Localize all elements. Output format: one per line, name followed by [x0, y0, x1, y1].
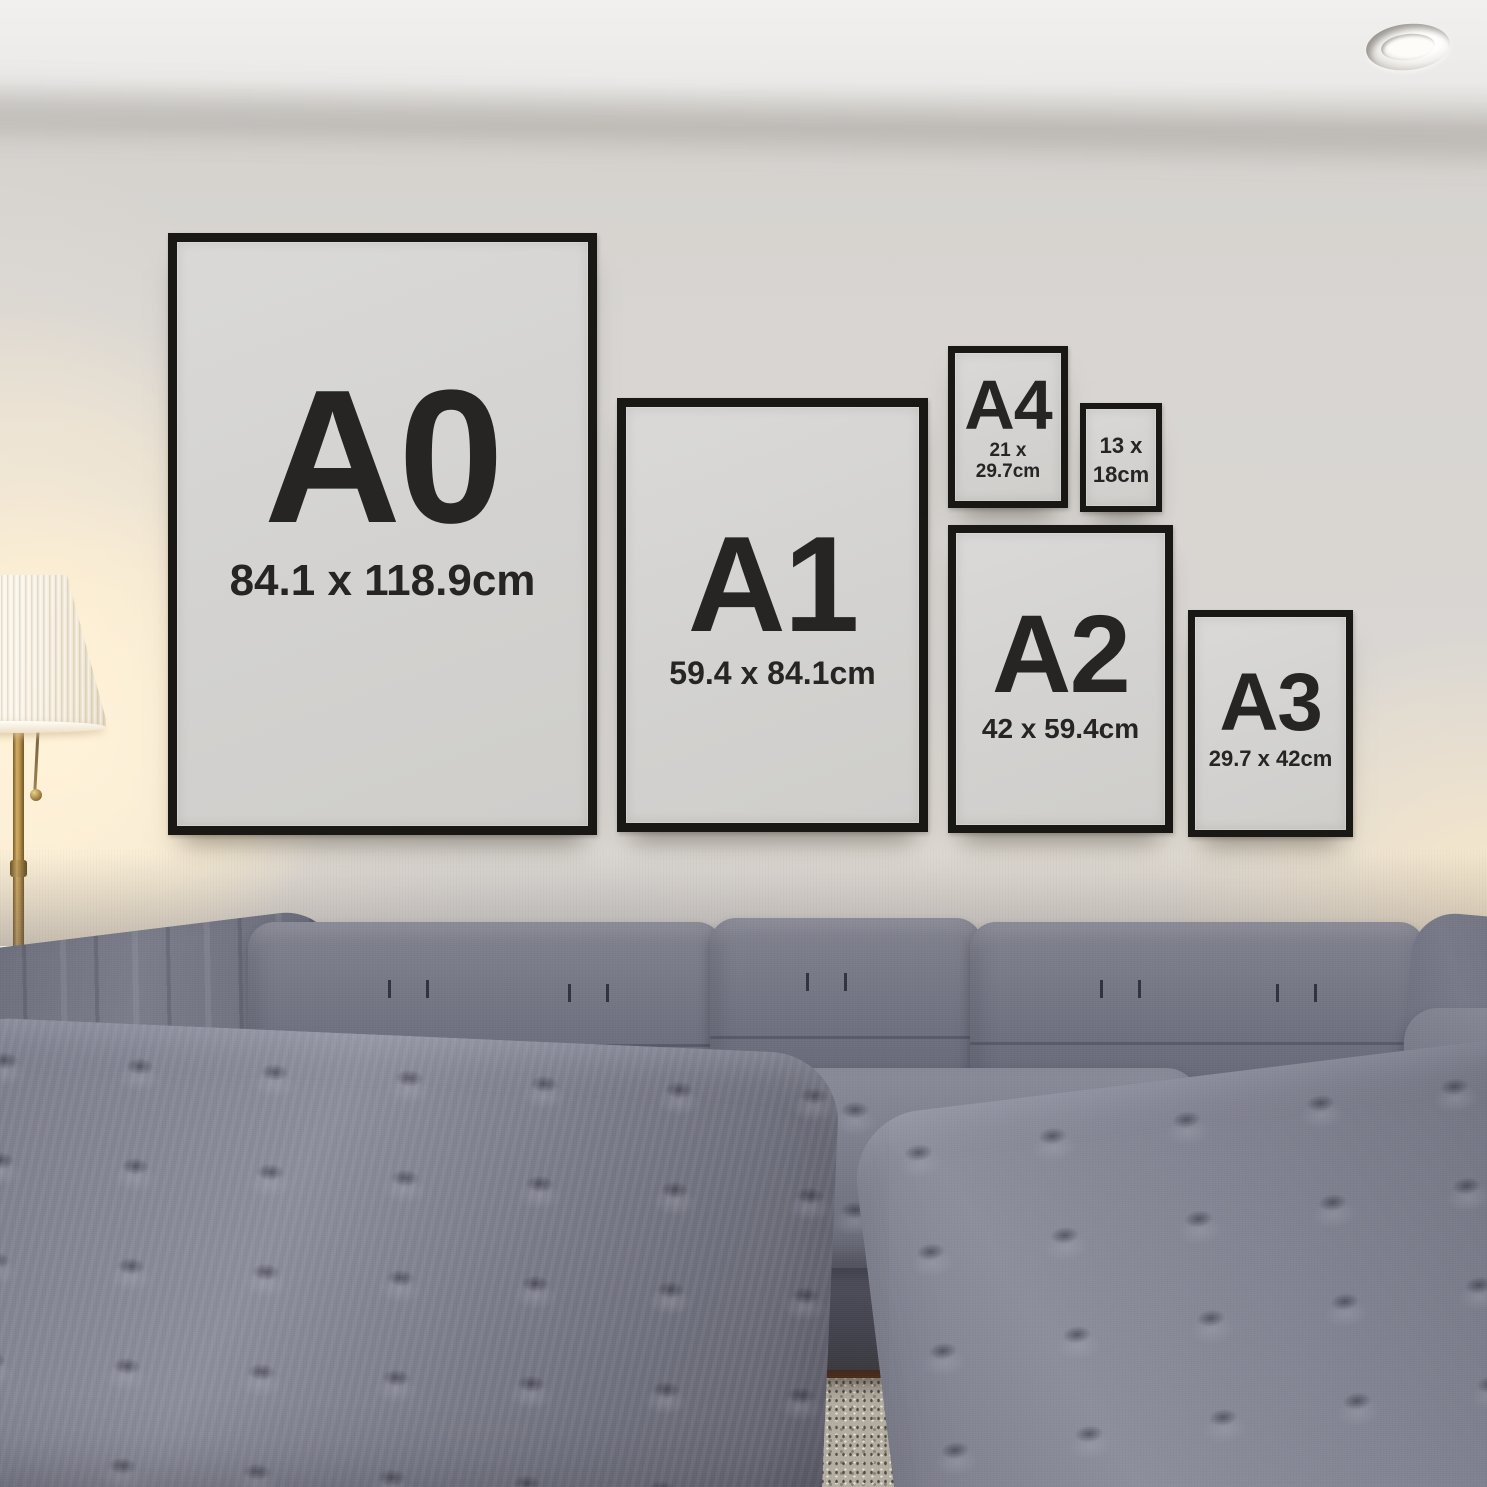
frame-a4: A4 21 x 29.7cm	[948, 346, 1068, 508]
poster-a0-label: A0	[177, 374, 588, 541]
poster-a0-size: 84.1 x 118.9cm	[177, 557, 588, 605]
frame-a0: A0 84.1 x 118.9cm	[168, 233, 597, 835]
living-room-scene: A0 84.1 x 118.9cm A1 59.4 x 84.1cm A4 21…	[0, 0, 1487, 1487]
poster-a4-size: 21 x 29.7cm	[955, 441, 1061, 483]
poster-13x18: 13 x 18cm	[1086, 432, 1156, 489]
poster-a3: A3 29.7 x 42cm	[1195, 667, 1346, 771]
poster-a1: A1 59.4 x 84.1cm	[626, 525, 919, 692]
poster-a4: A4 21 x 29.7cm	[955, 375, 1061, 483]
poster-a4-label: A4	[955, 375, 1061, 437]
poster-a1-label: A1	[626, 525, 919, 645]
poster-13x18-size: 13 x 18cm	[1091, 432, 1151, 489]
frame-a3: A3 29.7 x 42cm	[1188, 610, 1353, 837]
lamp-pull-chain-ball	[30, 789, 42, 801]
poster-a2: A2 42 x 59.4cm	[956, 607, 1165, 745]
poster-a2-label: A2	[956, 607, 1165, 704]
frame-a2: A2 42 x 59.4cm	[948, 525, 1173, 833]
sofa-chaise-left	[0, 1016, 841, 1487]
frame-a1: A1 59.4 x 84.1cm	[617, 398, 928, 832]
frame-13x18: 13 x 18cm	[1080, 403, 1162, 512]
poster-a2-size: 42 x 59.4cm	[956, 714, 1165, 745]
poster-a3-label: A3	[1195, 667, 1346, 739]
poster-a1-size: 59.4 x 84.1cm	[626, 656, 919, 691]
poster-a0: A0 84.1 x 118.9cm	[177, 374, 588, 606]
poster-a3-size: 29.7 x 42cm	[1195, 747, 1346, 771]
